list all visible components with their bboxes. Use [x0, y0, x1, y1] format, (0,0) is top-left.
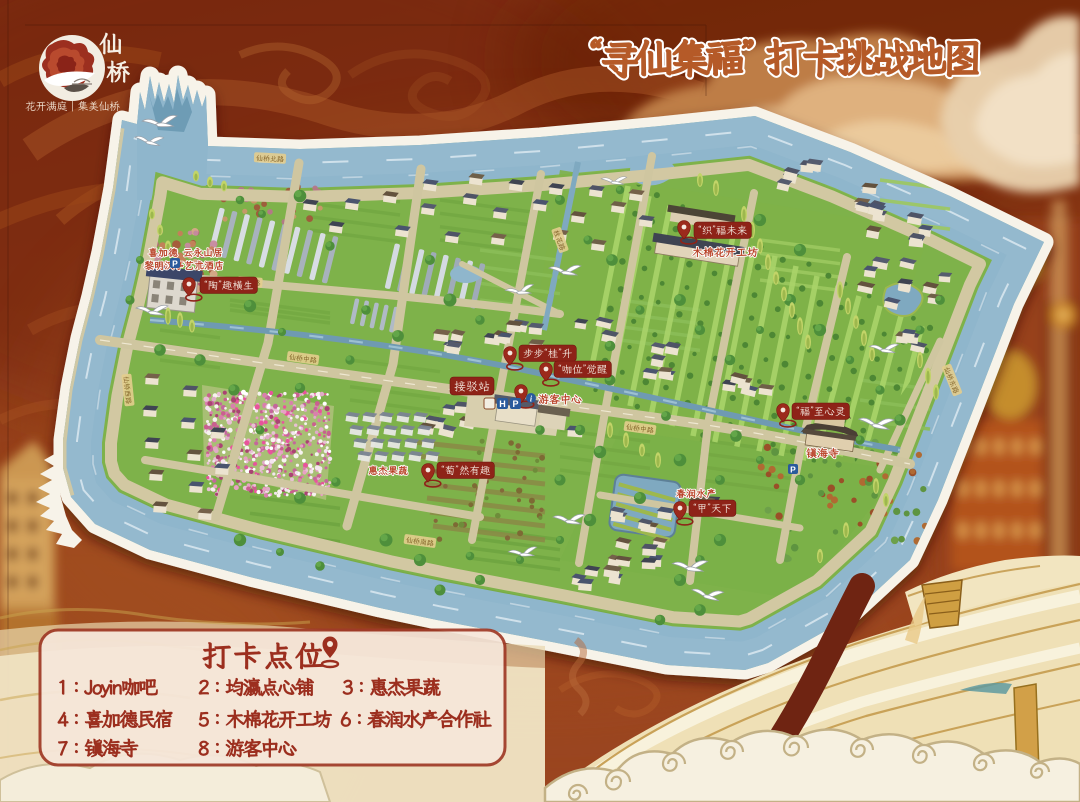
svg-text:P: P [172, 259, 178, 269]
svg-text:H: H [499, 399, 506, 409]
svg-text:P: P [512, 399, 518, 409]
svg-text:P: P [790, 465, 796, 475]
